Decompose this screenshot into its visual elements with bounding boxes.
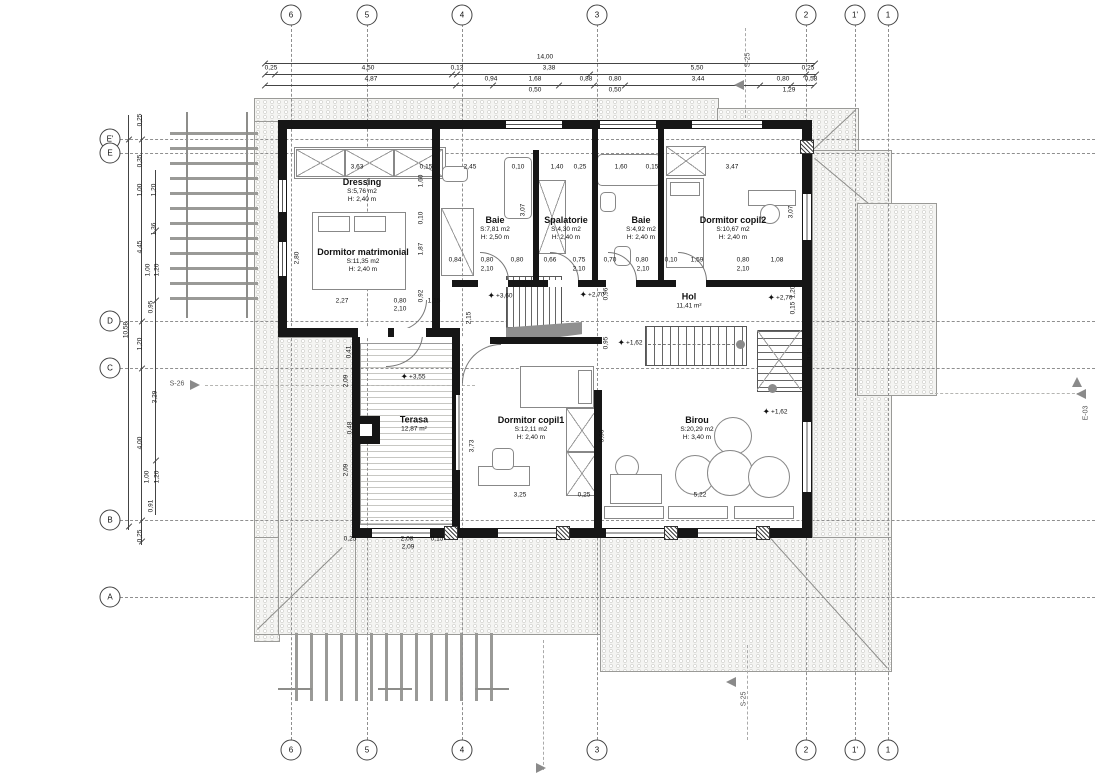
dimension-text: 0,25 — [802, 65, 815, 72]
room-height: H: 2,40 m — [498, 433, 565, 441]
round-table — [707, 450, 753, 496]
level-marker-icon: ✦ — [488, 291, 496, 301]
dimension-text: 5,50 — [691, 65, 704, 72]
dimension-text: 4,50 — [362, 65, 375, 72]
dimension-text: 3,25 — [514, 492, 527, 499]
dimension-text: 0,80 — [609, 76, 622, 83]
grid-line-vertical — [291, 24, 292, 740]
dimension-text: 0,41 — [346, 346, 353, 359]
dimension-text: 0,92 — [418, 290, 425, 303]
dimension-text: 2,45 — [464, 164, 477, 171]
dimension-text: 1,00 — [145, 264, 152, 277]
dimension-text: 14,00 — [537, 54, 553, 61]
dimension-text: 0,50 — [609, 87, 622, 94]
dimension-text: 1,20 — [154, 471, 161, 484]
dimension-text: 2,15 — [466, 312, 473, 325]
room-area: S:20,29 m2 — [680, 426, 713, 434]
room-height: H: 3,40 m — [680, 433, 713, 441]
window — [506, 121, 562, 128]
grid-bubble: 2 — [796, 5, 817, 26]
pillow — [318, 216, 350, 232]
dimension-text: 2,09 — [343, 375, 350, 388]
dimension-text: 1,40 — [551, 164, 564, 171]
door-opening — [676, 280, 706, 287]
dimension-text: 2,10 — [637, 266, 650, 273]
room-height: H: 2,50 m — [480, 233, 510, 241]
window — [698, 529, 756, 537]
round-table — [748, 456, 790, 498]
room-label: Dressing S:5,76 m2 H: 2,40 m — [343, 177, 382, 203]
bench — [668, 506, 728, 519]
room-name: Hol — [676, 292, 701, 303]
room-area: S:10,67 m2 — [700, 226, 767, 234]
dimension-text: 0,84 — [449, 257, 462, 264]
dimension-text: 0,15 — [431, 536, 444, 543]
dimension-text: 0,70 — [604, 257, 617, 264]
grid-line-horizontal — [120, 139, 1095, 140]
dimension-text: 3,07 — [520, 204, 527, 217]
section-arrow — [1076, 389, 1086, 399]
grid-bubble: 4 — [452, 5, 473, 26]
section-arrow — [190, 380, 200, 390]
level-value: +3,55 — [409, 374, 425, 381]
dimension-text: 3,47 — [726, 164, 739, 171]
pergola-south — [283, 633, 498, 701]
window — [803, 194, 811, 240]
level-value: +1,62 — [771, 409, 787, 416]
section-label: S-25 — [741, 692, 748, 707]
level-value: +3,60 — [496, 293, 512, 300]
dimension-text: 0,13 — [451, 65, 464, 72]
dimension-text: 1,60 — [418, 175, 425, 188]
room-area: S:11,35 m2 — [317, 258, 409, 266]
dimension-text: 2,80 — [294, 252, 301, 265]
dimension-text: 0,25 — [265, 65, 278, 72]
grid-bubble: B — [100, 510, 121, 531]
dimension-text: 1,08 — [771, 257, 784, 264]
grid-line-horizontal — [120, 368, 1095, 369]
room-label: Baie S:4,92 m2 H: 2,40 m — [626, 215, 656, 241]
shower — [441, 208, 474, 276]
room-name: Terasa — [400, 415, 428, 426]
grid-bubble: 1 — [878, 5, 899, 26]
level-marker: ✦+1,62 — [763, 407, 788, 418]
dimension-text: 1,00 — [144, 471, 151, 484]
door-opening — [478, 280, 508, 287]
grid-bubble: 6 — [281, 740, 302, 761]
partition — [658, 128, 664, 280]
grid-bubble: A — [100, 587, 121, 608]
bench — [734, 506, 794, 519]
door-opening — [460, 337, 490, 344]
dimension-text: 1,00 — [137, 184, 144, 197]
room-label: Baie S:7,81 m2 H: 2,50 m — [480, 215, 510, 241]
room-height: H: 2,40 m — [317, 265, 409, 273]
grid-line-vertical — [888, 24, 889, 740]
chair — [492, 448, 514, 470]
room-area: 12,87 m² — [400, 426, 428, 434]
dimension-text: 2,10 — [394, 306, 407, 313]
partition — [533, 150, 539, 280]
level-marker: ✦+2,70 — [580, 290, 605, 301]
desk — [610, 474, 662, 504]
window — [600, 121, 656, 128]
sink — [600, 192, 616, 212]
grid-bubble: 3 — [587, 740, 608, 761]
dimension-text: 0,25 — [574, 164, 587, 171]
dimension-text: 0,95 — [148, 301, 155, 314]
grid-bubble: 1' — [845, 740, 866, 761]
grid-bubble: 5 — [357, 740, 378, 761]
dimension-text: 0,50 — [529, 87, 542, 94]
dimension-text: 3,44 — [692, 76, 705, 83]
pergola-rail — [246, 112, 248, 318]
level-marker: ✦+3,60 — [488, 291, 513, 302]
grid-line-vertical — [855, 24, 856, 740]
door-opening — [394, 328, 426, 337]
dimension-text: 1,20 — [137, 338, 144, 351]
room-area: S:12,11 m2 — [498, 426, 565, 434]
dimension-text: 0,80 — [737, 257, 750, 264]
room-area: S:5,76 m2 — [343, 188, 382, 196]
dimension-text: 4,00 — [137, 437, 144, 450]
grid-bubble: 3 — [587, 5, 608, 26]
section-label: S-25 — [745, 53, 752, 68]
dimension-text: 0,15 — [790, 302, 797, 315]
room-name: Dormitor copil1 — [498, 415, 565, 426]
dimension-tick — [126, 523, 132, 529]
pergola-west — [170, 120, 258, 310]
dimension-text: 0,80 — [636, 257, 649, 264]
dimension-text: 0,95 — [603, 337, 610, 350]
grid-line-vertical — [367, 24, 368, 740]
grid-line-horizontal — [120, 321, 1095, 322]
section-arrow — [536, 763, 546, 773]
dimension-text: 2,08 — [401, 536, 414, 543]
dimension-text: 3,38 — [543, 65, 556, 72]
room-name: Dressing — [343, 177, 382, 188]
room-label: Hol 11,41 m² — [676, 292, 701, 311]
dimension-text: 0,15 — [646, 164, 659, 171]
section-label: E-03 — [1083, 406, 1090, 421]
stairs-handrail-post — [736, 340, 745, 349]
dimension-text: 0,25 — [344, 536, 357, 543]
grid-bubble: C — [100, 358, 121, 379]
dimension-text: 0,88 — [580, 76, 593, 83]
stairs-main-flight — [645, 326, 747, 366]
dimension-text: 0,75 — [573, 257, 586, 264]
dimension-text: 1,36 — [151, 223, 158, 236]
partition — [592, 128, 598, 280]
dimension-text: 1,87 — [418, 243, 425, 256]
room-height: H: 2,40 m — [700, 233, 767, 241]
grid-bubble: 1' — [845, 5, 866, 26]
column-pier — [664, 526, 678, 540]
room-area: S:4,30 m2 — [544, 226, 588, 234]
room-label: Dormitor matrimonial S:11,35 m2 H: 2,40 … — [317, 247, 409, 273]
window — [279, 180, 286, 212]
window — [803, 422, 811, 492]
dimension-text: 0,94 — [485, 76, 498, 83]
dimension-text: 3,29 — [152, 391, 159, 404]
dimension-tick — [811, 82, 817, 88]
floor-plan-drawing: 654321'1 654321'1 E'EDCBA — [0, 0, 1100, 776]
grid-bubble: E — [100, 143, 121, 164]
partition — [594, 390, 602, 538]
room-name: Birou — [680, 415, 713, 426]
dimension-text: 0,35 — [137, 155, 144, 168]
room-name: Spalatorie — [544, 215, 588, 226]
dimension-text: 0,66 — [544, 257, 557, 264]
dimension-text: 0,58 — [805, 76, 818, 83]
dimension-text: 2,10 — [481, 266, 494, 273]
dimension-text: 1,68 — [529, 76, 542, 83]
dimension-text: 2,09 — [402, 544, 415, 551]
room-label: Birou S:20,29 m2 H: 3,40 m — [680, 415, 713, 441]
room-height: H: 2,40 m — [626, 233, 656, 241]
room-name: Baie — [626, 215, 656, 226]
section-label: S-26 — [170, 381, 185, 388]
door-opening — [606, 280, 636, 287]
level-marker: ✦+1,62 — [618, 338, 643, 349]
dimension-text: 0,10 — [665, 257, 678, 264]
room-label: Spalatorie S:4,30 m2 H: 2,40 m — [544, 215, 588, 241]
stairs-walk-line — [648, 344, 740, 345]
dimension-text: 0,95 — [807, 348, 814, 361]
pergola-bar — [475, 688, 509, 690]
pillow — [354, 216, 386, 232]
grid-bubble: 5 — [357, 5, 378, 26]
roof-bottom-right — [600, 537, 892, 672]
level-marker-icon: ✦ — [401, 372, 409, 382]
wardrobe-cell — [296, 149, 345, 177]
room-label: Terasa 12,87 m² — [400, 415, 428, 434]
dimension-text: 0,96 — [603, 288, 610, 301]
grid-bubble: 1 — [878, 740, 899, 761]
dimension-text: 0,91 — [148, 500, 155, 513]
wall-west — [278, 120, 287, 337]
room-area: S:7,81 m2 — [480, 226, 510, 234]
dimension-text: 4,87 — [365, 76, 378, 83]
section-line — [543, 640, 544, 770]
room-name: Baie — [480, 215, 510, 226]
window — [456, 395, 462, 470]
dimension-text: 2,10 — [737, 266, 750, 273]
dimension-text: 0,25 — [137, 114, 144, 127]
door-opening — [548, 280, 578, 287]
level-marker-icon: ✦ — [768, 293, 776, 303]
pillow — [578, 370, 592, 404]
pergola-rail — [186, 112, 188, 318]
pergola-bar — [378, 688, 412, 690]
room-area: S:4,92 m2 — [626, 226, 656, 234]
stairs-handrail-post — [768, 384, 777, 393]
dimension-text: 2,09 — [343, 464, 350, 477]
stairs-break-cross — [757, 330, 801, 390]
grid-line-horizontal — [120, 597, 1095, 598]
column-pier — [556, 526, 570, 540]
dimension-text: 1,20 — [790, 286, 797, 299]
door-opening — [358, 328, 388, 337]
window — [692, 121, 762, 128]
dimension-tick — [153, 457, 159, 463]
room-name: Dormitor matrimonial — [317, 247, 409, 258]
dimension-text: 0,80 — [481, 257, 494, 264]
grid-bubble: 4 — [452, 740, 473, 761]
section-line — [745, 28, 746, 118]
room-label: Dormitor copil1 S:12,11 m2 H: 2,40 m — [498, 415, 565, 441]
level-marker: ✦+3,55 — [401, 372, 426, 383]
room-height: H: 2,40 m — [343, 195, 382, 203]
section-line — [205, 385, 475, 386]
grid-bubble: 6 — [281, 5, 302, 26]
dimension-line — [265, 63, 815, 64]
dimension-text: 3,06 — [599, 430, 606, 443]
dimension-line — [141, 115, 142, 545]
pillow — [670, 182, 700, 196]
section-line — [930, 393, 1080, 394]
dimension-text: 1,20 — [151, 184, 158, 197]
grid-bubble: 2 — [796, 740, 817, 761]
dimension-text: 5,22 — [694, 492, 707, 499]
dimension-text: 10,58 — [123, 322, 130, 338]
level-marker-icon: ✦ — [618, 338, 626, 348]
column-pier — [444, 526, 458, 540]
room-area: 11,41 m² — [676, 303, 701, 311]
dimension-text: 0,80 — [394, 298, 407, 305]
roof-top — [254, 98, 719, 122]
room-name: Dormitor copil2 — [700, 215, 767, 226]
window — [498, 529, 556, 537]
section-arrow — [734, 80, 744, 90]
grid-bubble: D — [100, 311, 121, 332]
closet — [666, 146, 706, 176]
dimension-text: 0,15 — [420, 164, 433, 171]
bench — [604, 506, 664, 519]
dimension-text: 0,25 — [137, 530, 144, 543]
column-pier — [800, 140, 814, 154]
room-height: H: 2,40 m — [544, 233, 588, 241]
section-arrow — [1072, 377, 1082, 387]
section-arrow — [726, 677, 736, 687]
dimension-text: 0,10 — [512, 164, 525, 171]
level-marker-icon: ✦ — [580, 290, 588, 300]
dimension-text: 1,29 — [783, 87, 796, 94]
dimension-text: 3,63 — [351, 164, 364, 171]
level-marker-icon: ✦ — [763, 407, 771, 417]
grid-line-horizontal — [120, 520, 1095, 521]
dimension-text: 1,20 — [154, 264, 161, 277]
dimension-text: 4,45 — [137, 241, 144, 254]
window — [606, 529, 664, 537]
dimension-text: 1,60 — [615, 164, 628, 171]
window — [279, 242, 286, 276]
dimension-text: 0,10 — [418, 212, 425, 225]
dimension-text: 0,80 — [777, 76, 790, 83]
dimension-text: 0,80 — [511, 257, 524, 264]
dimension-text: 3,07 — [788, 206, 795, 219]
dimension-text: 0,48 — [347, 422, 354, 435]
pergola-bar — [278, 688, 312, 690]
dimension-text: 1,59 — [691, 257, 704, 264]
dimension-text: 0,25 — [578, 492, 591, 499]
column-pier — [756, 526, 770, 540]
level-value: +1,62 — [626, 340, 642, 347]
dimension-text: 3,73 — [469, 440, 476, 453]
dimension-text: 2,10 — [573, 266, 586, 273]
dimension-text: 1,15 — [428, 298, 441, 305]
dimension-text: 2,27 — [336, 298, 349, 305]
room-label: Dormitor copil2 S:10,67 m2 H: 2,40 m — [700, 215, 767, 241]
terrace-post-core — [360, 424, 372, 436]
